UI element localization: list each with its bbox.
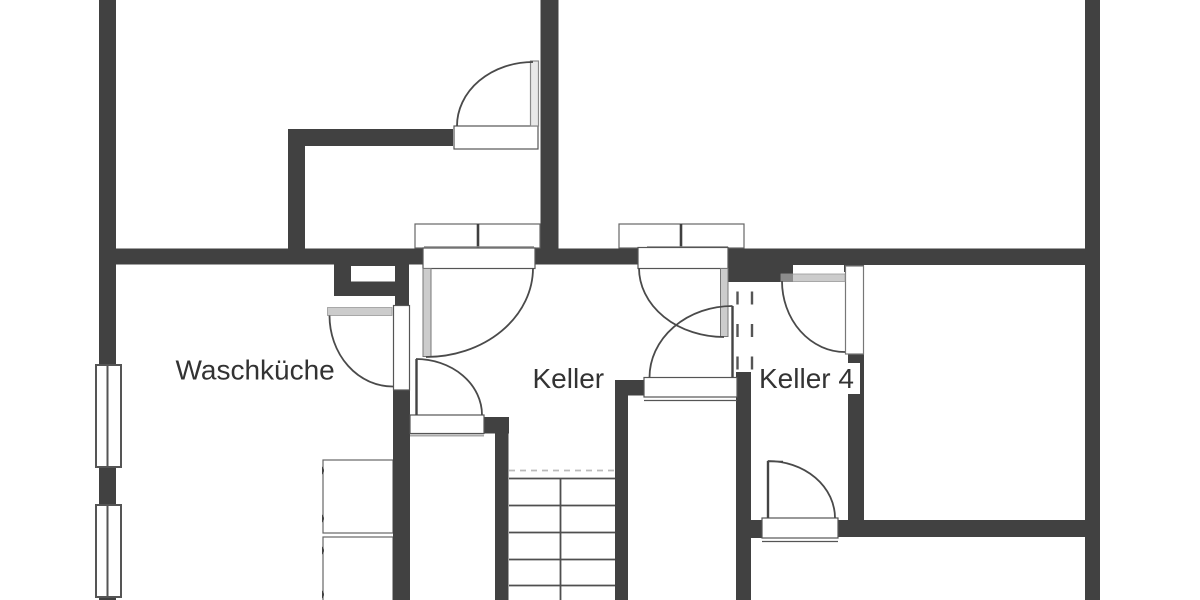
svg-text:Keller 4: Keller 4: [759, 363, 854, 394]
svg-text:Waschküche: Waschküche: [176, 355, 335, 386]
svg-text:Keller: Keller: [533, 363, 605, 394]
